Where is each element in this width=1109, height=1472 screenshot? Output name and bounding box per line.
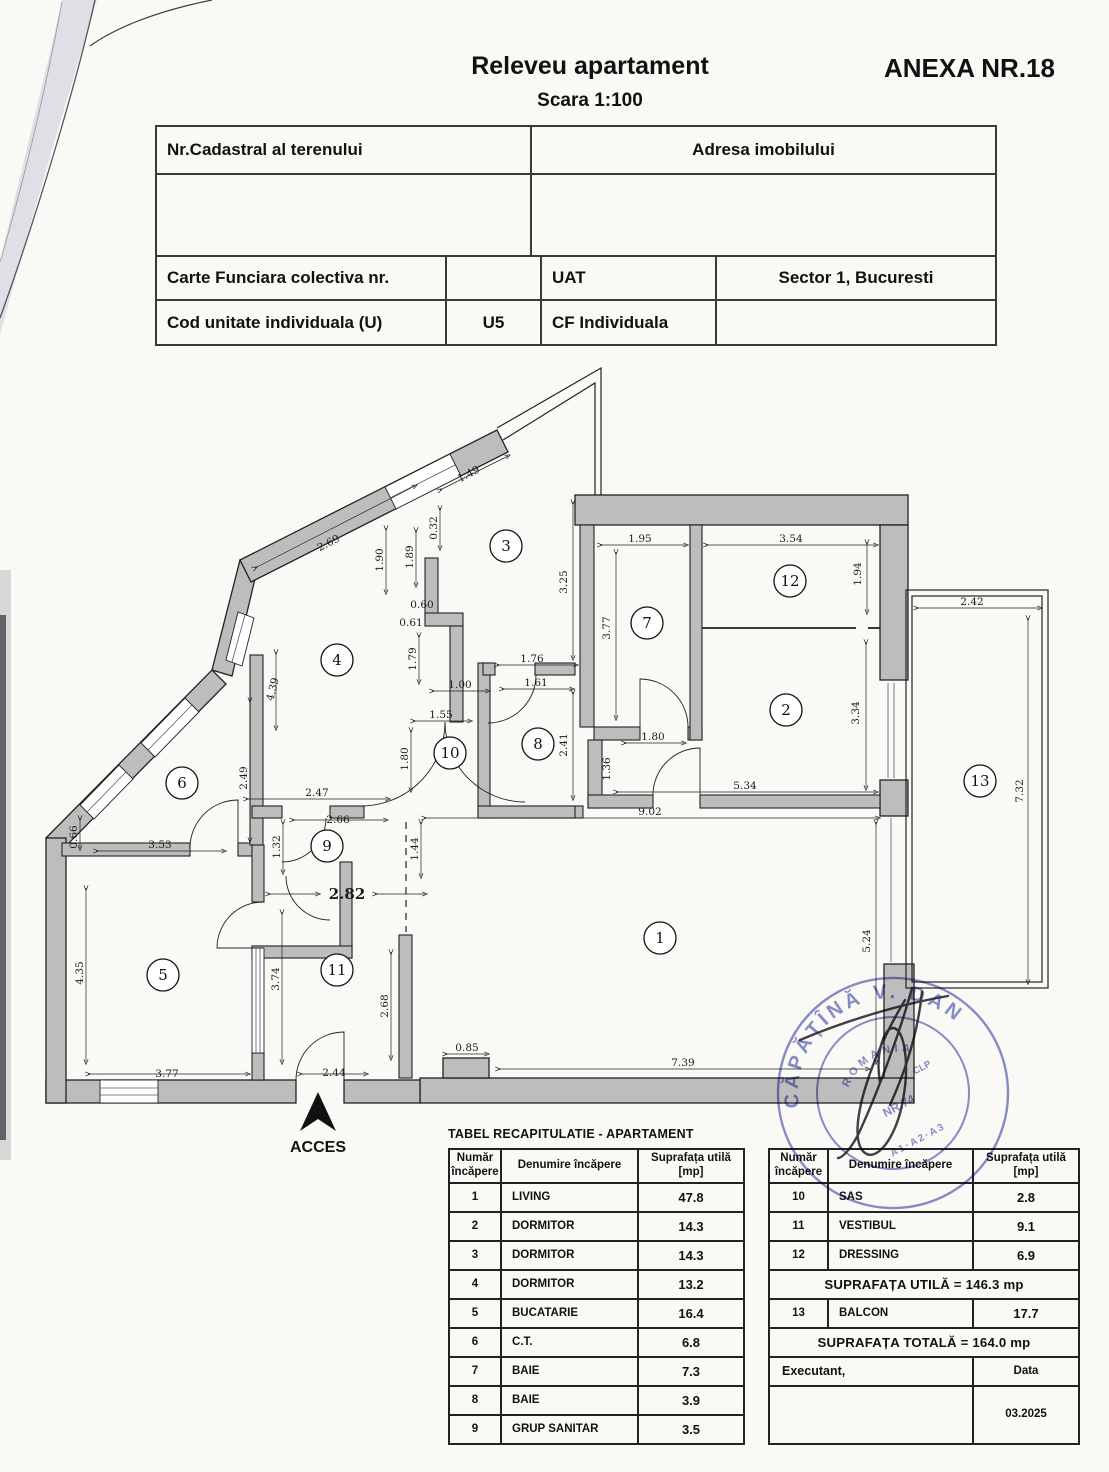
dim-label: 3.77	[601, 616, 613, 639]
dim-label: 2.47	[305, 787, 328, 799]
dim-label: 3.74	[270, 967, 282, 991]
cell: 8	[449, 1386, 501, 1415]
dim-label: 1.89	[404, 545, 416, 568]
cell: DRESSING	[828, 1241, 973, 1270]
cell: 4	[449, 1270, 501, 1299]
dim-label: 1.80	[641, 731, 664, 743]
svg-text:9: 9	[322, 837, 332, 855]
uat-label: UAT	[541, 255, 716, 300]
cell: 6.8	[638, 1328, 744, 1357]
cell: BALCON	[828, 1299, 973, 1328]
dim-label: 9.02	[638, 806, 661, 818]
room-label-6: 6	[166, 767, 198, 799]
dim-label: 5.34	[733, 780, 757, 792]
executant-label: Executant,	[769, 1357, 973, 1386]
cell: SAS	[828, 1183, 973, 1212]
cell: 13	[769, 1299, 828, 1328]
col-header-name: Denumire încăpere	[501, 1149, 638, 1183]
room-label-4: 4	[321, 644, 353, 676]
svg-text:6: 6	[177, 774, 187, 792]
col-header-num: Număr încăpere	[769, 1149, 828, 1183]
dim-label: 1.32	[271, 835, 283, 858]
dim-label: 2.41	[558, 733, 570, 756]
dim-label: 2.82	[329, 885, 366, 903]
room-label-13: 13	[964, 765, 996, 797]
svg-text:3: 3	[501, 537, 511, 555]
svg-text:11: 11	[327, 961, 346, 979]
dim-label: 2.49	[238, 766, 250, 789]
cell: GRUP SANITAR	[501, 1415, 638, 1444]
dim-label: 0.66	[68, 825, 80, 849]
col-header-area: Suprafața utilă [mp]	[973, 1149, 1079, 1183]
svg-text:5: 5	[158, 966, 168, 984]
date-value: 03.2025	[973, 1386, 1079, 1444]
dim-label: 3.54	[779, 533, 803, 545]
dim-label: 2.68	[379, 994, 391, 1017]
cell: 14.3	[638, 1241, 744, 1270]
dim-label: 1.94	[852, 562, 864, 586]
col-header-area: Suprafața utilă [mp]	[638, 1149, 744, 1183]
cell: 16.4	[638, 1299, 744, 1328]
svg-text:7: 7	[642, 614, 652, 632]
cell: 3	[449, 1241, 501, 1270]
cell: 14.3	[638, 1212, 744, 1241]
room-label-10: 10	[434, 737, 466, 769]
room-labels: 1 2 3 4 5 6 7 8 9 10 11 12 13	[147, 530, 996, 991]
room-label-12: 12	[774, 565, 806, 597]
interior-walls	[62, 525, 880, 1080]
dim-label: 1.55	[429, 709, 452, 721]
room-label-2: 2	[770, 694, 802, 726]
cell: DORMITOR	[501, 1241, 638, 1270]
cell: 5	[449, 1299, 501, 1328]
total-area: SUPRAFAȚA TOTALĂ = 164.0 mp	[769, 1328, 1079, 1357]
dim-label: 1.36	[601, 757, 613, 781]
dim-label: 4.39	[264, 676, 281, 702]
dim-label: 0.61	[399, 617, 422, 629]
col-header-num: Număr încăpere	[449, 1149, 501, 1183]
dim-label: 7.39	[671, 1057, 694, 1069]
recap-table-left: Număr încăpere Denumire încăpere Suprafa…	[448, 1148, 745, 1445]
cell: VESTIBUL	[828, 1212, 973, 1241]
svg-text:10: 10	[440, 744, 459, 762]
dim-label: 3.34	[850, 701, 862, 725]
cell: 9	[449, 1415, 501, 1444]
address-label: Adresa imobilului	[531, 126, 996, 174]
recap-table-right: Număr încăpere Denumire încăpere Suprafa…	[768, 1148, 1080, 1445]
dim-label: 4.35	[74, 961, 86, 984]
cell: 1	[449, 1183, 501, 1212]
total-utila: SUPRAFAȚA UTILĂ = 146.3 mp	[769, 1270, 1079, 1299]
cadastral-label: Nr.Cadastral al terenului	[156, 126, 531, 174]
room-label-9: 9	[311, 830, 343, 862]
cell: LIVING	[501, 1183, 638, 1212]
svg-text:8: 8	[533, 735, 543, 753]
cell: 2	[449, 1212, 501, 1241]
dim-label: 1.44	[409, 837, 421, 861]
cell: 12	[769, 1241, 828, 1270]
room-label-5: 5	[147, 959, 179, 991]
svg-text:12: 12	[780, 572, 799, 590]
cell: 7	[449, 1357, 501, 1386]
dim-label: 1.80	[399, 747, 411, 770]
svg-text:2: 2	[781, 701, 791, 719]
cell: 6.9	[973, 1241, 1079, 1270]
svg-text:4: 4	[332, 651, 342, 669]
cell: 17.7	[973, 1299, 1079, 1328]
dim-label: 3.25	[558, 570, 570, 593]
dim-label: 7.32	[1014, 779, 1026, 802]
cf-label: Carte Funciara colectiva nr.	[156, 255, 446, 300]
dim-label: 0.85	[455, 1042, 478, 1054]
dim-label: 1.95	[628, 533, 651, 545]
executant-signature-cell	[769, 1386, 973, 1444]
cell: 7.3	[638, 1357, 744, 1386]
cell: 9.1	[973, 1212, 1079, 1241]
dim-label: 1.61	[524, 677, 547, 689]
cell: 3.5	[638, 1415, 744, 1444]
acces-label: ACCES	[290, 1139, 346, 1156]
dim-label: 3.53	[148, 839, 171, 851]
cell: DORMITOR	[501, 1212, 638, 1241]
unit-label: Cod unitate individuala (U)	[156, 300, 446, 345]
cell: 11	[769, 1212, 828, 1241]
cell: 2.8	[973, 1183, 1079, 1212]
room-label-11: 11	[321, 954, 353, 986]
info-table-top: Nr.Cadastral al terenului Adresa imobilu…	[155, 125, 997, 257]
cell: BUCATARIE	[501, 1299, 638, 1328]
dim-label: 1.79	[407, 647, 419, 670]
cell: BAIE	[501, 1357, 638, 1386]
room-label-7: 7	[631, 607, 663, 639]
cfi-value	[716, 300, 996, 345]
dim-label: 1.00	[448, 679, 471, 691]
info-table-bottom: Carte Funciara colectiva nr. UAT Sector …	[155, 255, 997, 346]
cell: 13.2	[638, 1270, 744, 1299]
dim-label: 0.32	[428, 516, 440, 539]
unit-value: U5	[446, 300, 541, 345]
cell: 47.8	[638, 1183, 744, 1212]
dim-label: 2.44	[322, 1067, 346, 1079]
dim-label: 3.77	[155, 1068, 178, 1080]
dim-label: 1.90	[374, 548, 386, 571]
cadastral-value	[156, 174, 531, 256]
data-label: Data	[973, 1357, 1079, 1386]
room-label-8: 8	[522, 728, 554, 760]
dim-label: 2.42	[960, 596, 983, 608]
cell: DORMITOR	[501, 1270, 638, 1299]
cell: 3.9	[638, 1386, 744, 1415]
dim-label: 0.60	[410, 599, 433, 611]
dim-label: 2.66	[326, 814, 350, 826]
svg-text:1: 1	[655, 929, 665, 947]
cell: C.T.	[501, 1328, 638, 1357]
uat-value: Sector 1, Bucuresti	[716, 255, 996, 300]
room-label-3: 3	[490, 530, 522, 562]
col-header-name: Denumire încăpere	[828, 1149, 973, 1183]
svg-text:13: 13	[970, 772, 989, 790]
address-value	[531, 174, 996, 256]
dim-label: 1.76	[520, 653, 544, 665]
acces-arrow: ACCES	[290, 1092, 346, 1156]
cell: 6	[449, 1328, 501, 1357]
cell: BAIE	[501, 1386, 638, 1415]
cfi-label: CF Individuala	[541, 300, 716, 345]
cell: 10	[769, 1183, 828, 1212]
room-label-1: 1	[644, 922, 676, 954]
scanned-document-page: 2.69 1.49 0.32 1.90 1.89 0.60 0.61 1.79 …	[0, 0, 1109, 1472]
dim-label: 5.24	[861, 929, 873, 953]
cf-value	[446, 255, 541, 300]
